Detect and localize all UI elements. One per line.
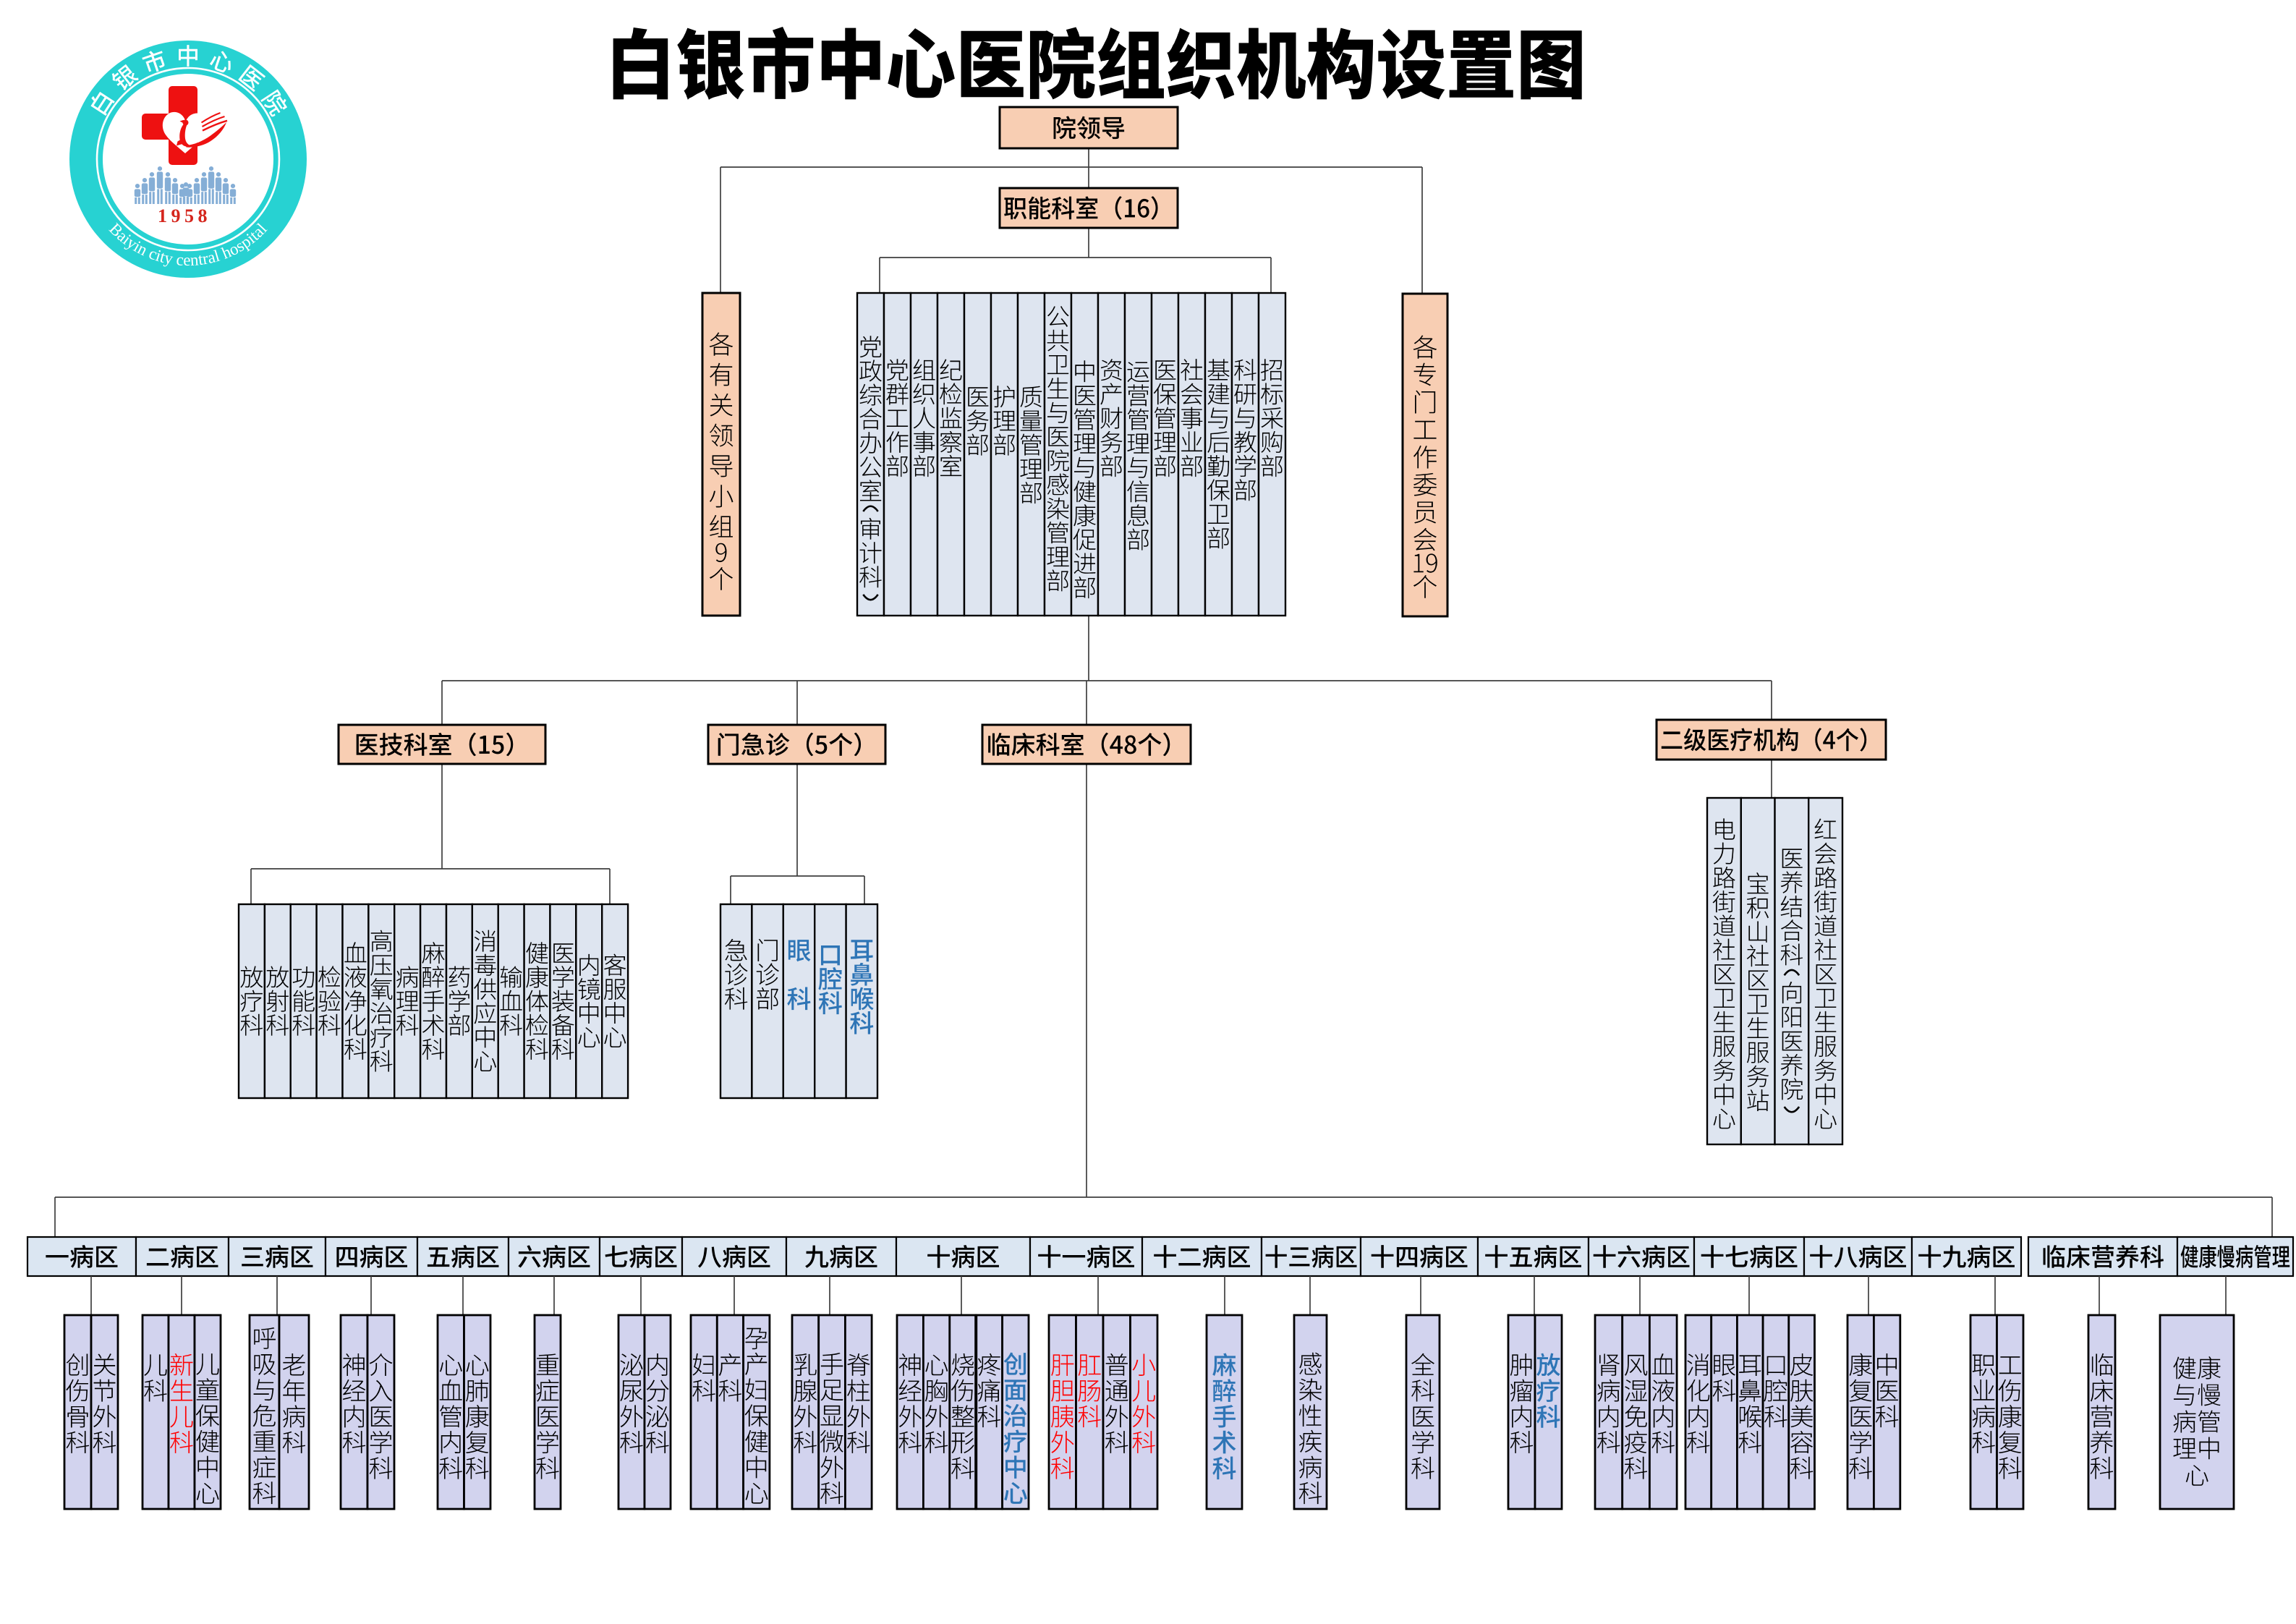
svg-text:1958: 1958 bbox=[158, 205, 211, 226]
